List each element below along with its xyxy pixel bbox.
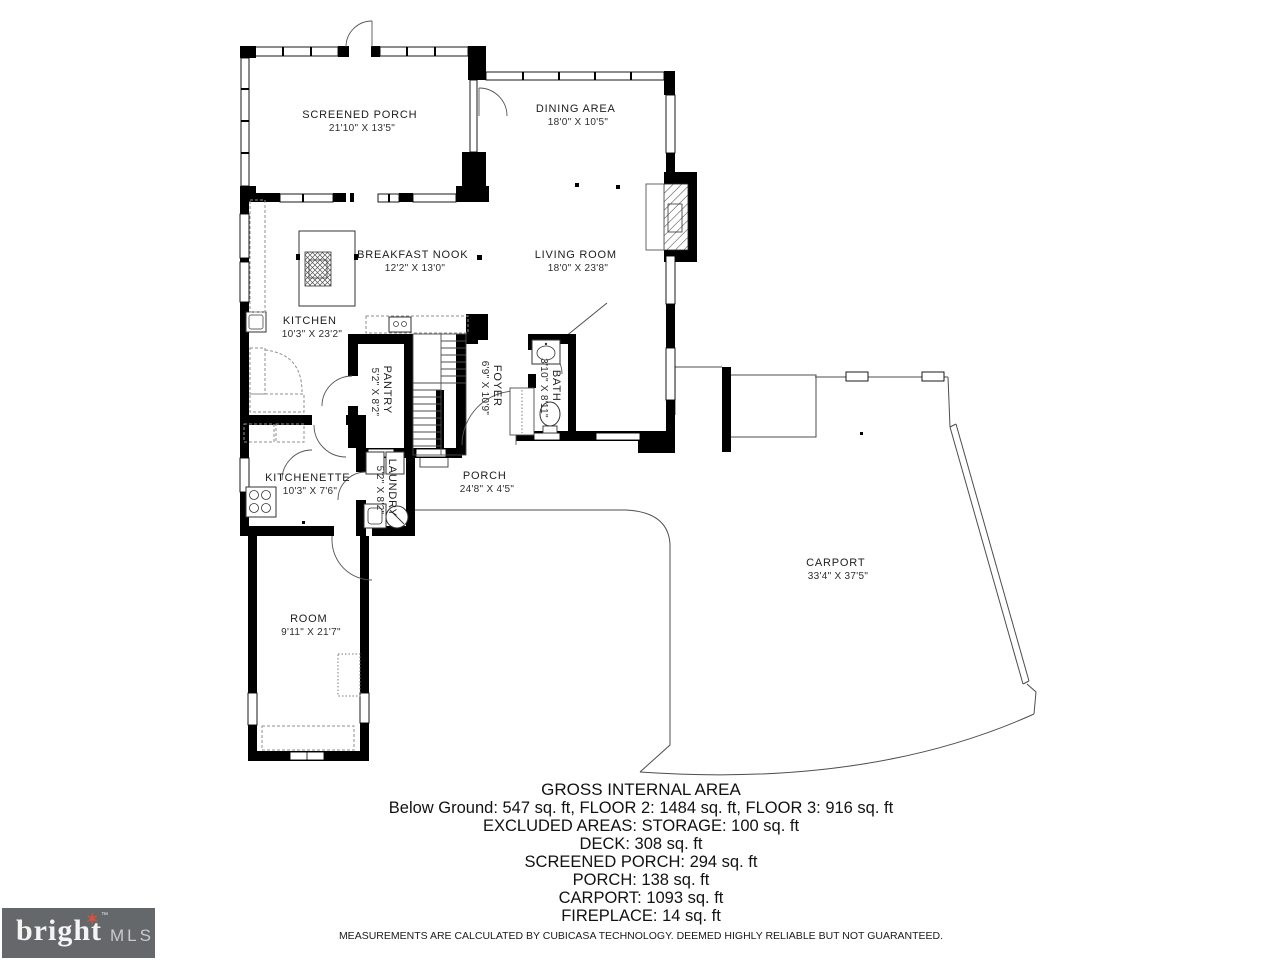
room-label-dining-area: DINING AREA 18'0" X 10'5" (536, 99, 620, 128)
fireplace-icon (646, 184, 688, 250)
carport-area-line: CARPORT: 1093 sq. ft (559, 889, 724, 907)
carport-post (846, 372, 868, 381)
floor-areas-line: Below Ground: 547 sq. ft, FLOOR 2: 1484 … (389, 799, 894, 817)
entry-step (420, 457, 448, 467)
star-icon: ✶ (86, 910, 99, 928)
floor-plan-page: SCREENED PORCH 21'10" X 13'5" DINING ARE… (0, 0, 1280, 960)
sink-icon (246, 312, 266, 332)
fireplace-area-line: FIREPLACE: 14 sq. ft (561, 907, 721, 925)
kitchen-island (296, 231, 358, 306)
excluded-areas-line: EXCLUDED AREAS: STORAGE: 100 sq. ft (483, 817, 799, 835)
porch-area-line: PORCH: 138 sq. ft (573, 871, 710, 889)
closet (510, 388, 534, 435)
room-label-kitchen: KITCHEN 10'3" X 23'2" (282, 311, 343, 340)
screened-porch-area-line: SCREENED PORCH: 294 sq. ft (525, 853, 758, 871)
room-label-laundry: LAUNDRY 5'2" X 8'2" (374, 459, 402, 521)
bright-mls-logo: bright ✶ ™ MLS (2, 908, 155, 958)
gross-internal-area-title: GROSS INTERNAL AREA (541, 780, 741, 799)
mls-logo-text: MLS (110, 926, 154, 946)
area-summary: GROSS INTERNAL AREA Below Ground: 547 sq… (339, 780, 943, 942)
room-label-porch: PORCH 24'8" X 4'5" (460, 466, 515, 495)
angled-wall-line (565, 303, 607, 337)
room-label-room: ROOM 9'11" X 21'7" (281, 609, 341, 638)
trademark-symbol: ™ (101, 912, 108, 919)
deck-area-line: DECK: 308 sq. ft (580, 835, 703, 853)
room-label-screened-porch: SCREENED PORCH 21'10" X 13'5" (302, 105, 422, 134)
room-label-kitchenette: KITCHENETTE 10'3" X 7'6" (265, 468, 355, 497)
dishwasher-icon (389, 317, 411, 332)
room-label-living-room: LIVING ROOM 18'0" X 23'8" (535, 245, 622, 274)
disclaimer-text: MEASUREMENTS ARE CALCULATED BY CUBICASA … (339, 930, 943, 942)
carport-post (922, 372, 944, 381)
storage-area-outline (730, 375, 816, 437)
room-label-pantry: PANTRY 5'2" X 8'2" (369, 366, 397, 419)
room-label-breakfast-nook: BREAKFAST NOOK 12'2" X 13'0" (357, 245, 473, 274)
room-label-carport: CARPORT 33'4" X 37'5" (806, 553, 870, 582)
stove-icon (246, 487, 276, 517)
room-label-foyer: FOYER 6'9" X 10'9" (479, 361, 507, 416)
floor-plan-drawing: SCREENED PORCH 21'10" X 13'5" DINING ARE… (0, 0, 1280, 960)
